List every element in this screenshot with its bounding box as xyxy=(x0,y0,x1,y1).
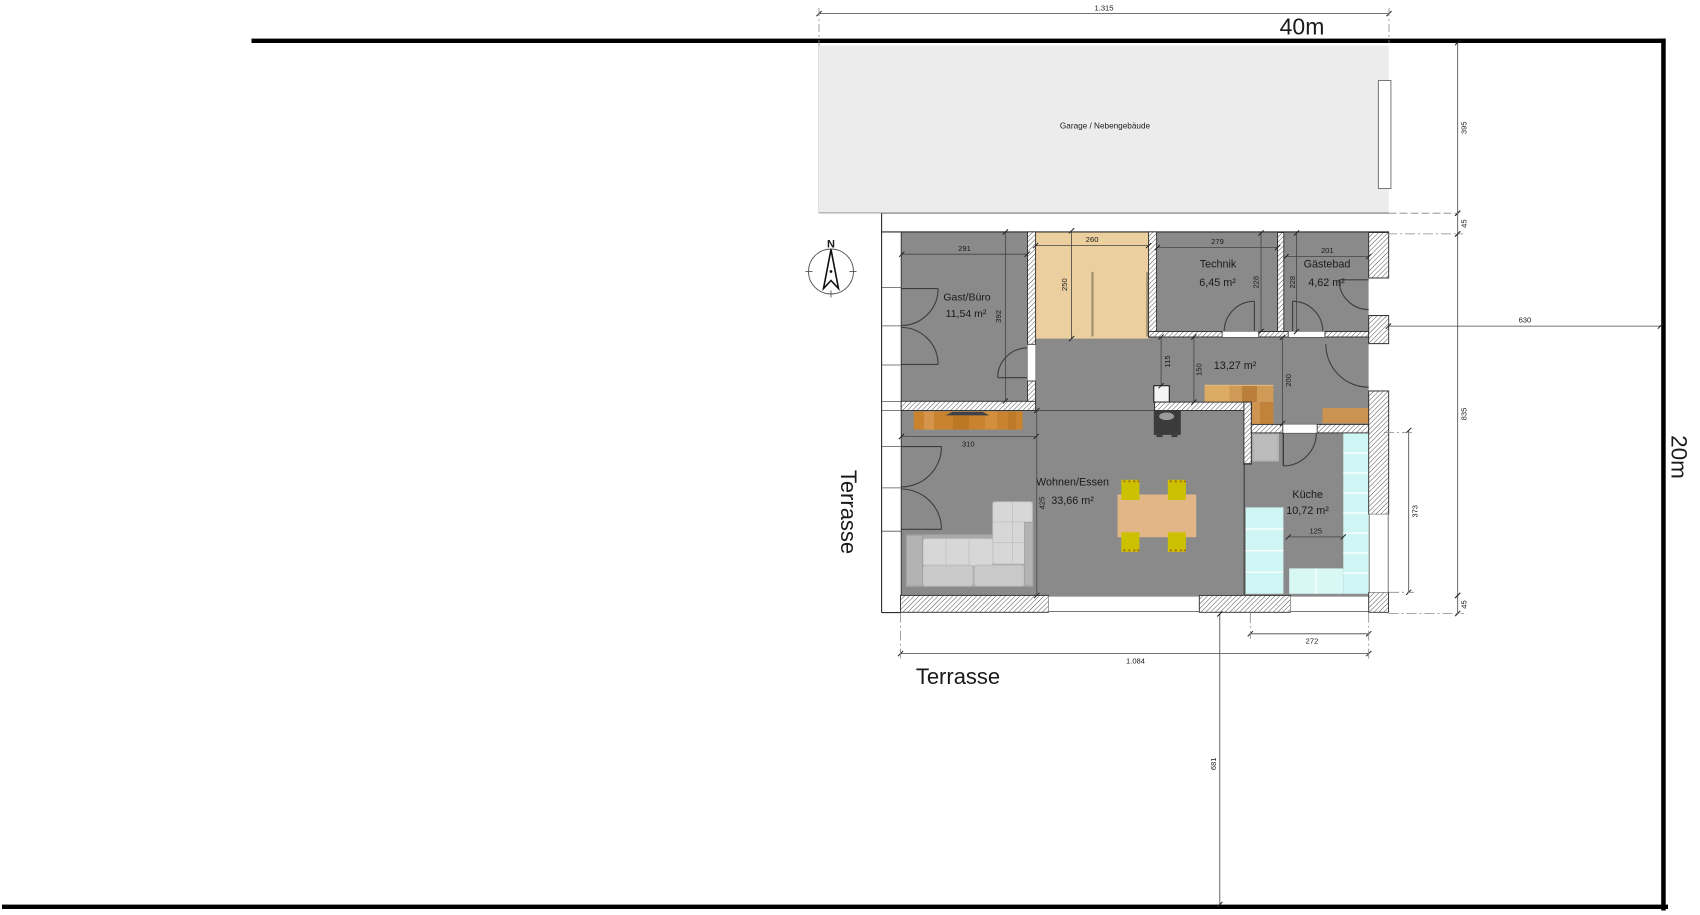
svg-text:201: 201 xyxy=(1321,246,1334,255)
svg-text:4,62 m²: 4,62 m² xyxy=(1308,277,1345,289)
svg-text:Küche: Küche xyxy=(1292,489,1323,501)
svg-text:392: 392 xyxy=(994,310,1003,323)
svg-text:Terrasse: Terrasse xyxy=(836,470,861,554)
svg-text:425: 425 xyxy=(1037,497,1046,510)
svg-text:373: 373 xyxy=(1411,505,1420,518)
svg-text:150: 150 xyxy=(1195,363,1204,376)
svg-text:279: 279 xyxy=(1211,237,1224,246)
svg-text:11,54 m²: 11,54 m² xyxy=(946,308,987,320)
svg-text:200: 200 xyxy=(1284,374,1293,387)
svg-text:835: 835 xyxy=(1460,408,1469,421)
svg-text:1.315: 1.315 xyxy=(1094,4,1113,13)
svg-text:20m: 20m xyxy=(1667,435,1692,479)
svg-text:250: 250 xyxy=(1060,278,1069,291)
svg-text:40m: 40m xyxy=(1280,14,1325,40)
svg-text:Gästebad: Gästebad xyxy=(1304,259,1351,271)
svg-text:Technik: Technik xyxy=(1200,259,1237,271)
svg-text:395: 395 xyxy=(1460,121,1469,134)
svg-text:260: 260 xyxy=(1086,235,1099,244)
svg-text:33,66 m²: 33,66 m² xyxy=(1051,495,1094,507)
svg-text:125: 125 xyxy=(1309,526,1322,535)
svg-text:115: 115 xyxy=(1163,355,1172,367)
svg-text:Garage / Nebengebäude: Garage / Nebengebäude xyxy=(1060,122,1151,131)
svg-text:45: 45 xyxy=(1460,219,1469,227)
svg-text:45: 45 xyxy=(1460,600,1469,608)
svg-text:Wohnen/Essen: Wohnen/Essen xyxy=(1036,477,1109,489)
svg-text:681: 681 xyxy=(1209,757,1218,770)
svg-text:228: 228 xyxy=(1288,276,1297,289)
svg-text:N: N xyxy=(827,239,835,251)
svg-text:272: 272 xyxy=(1306,637,1319,646)
svg-text:Terrasse: Terrasse xyxy=(916,664,1000,689)
svg-text:291: 291 xyxy=(958,244,971,253)
svg-text:13,27 m²: 13,27 m² xyxy=(1214,360,1257,372)
svg-text:228: 228 xyxy=(1251,276,1260,289)
svg-text:Gast/Büro: Gast/Büro xyxy=(943,292,990,304)
svg-text:630: 630 xyxy=(1519,315,1532,324)
svg-text:310: 310 xyxy=(962,439,975,448)
svg-text:10,72 m²: 10,72 m² xyxy=(1286,505,1329,517)
svg-text:6,45 m²: 6,45 m² xyxy=(1199,277,1236,289)
svg-text:1.084: 1.084 xyxy=(1126,656,1145,665)
